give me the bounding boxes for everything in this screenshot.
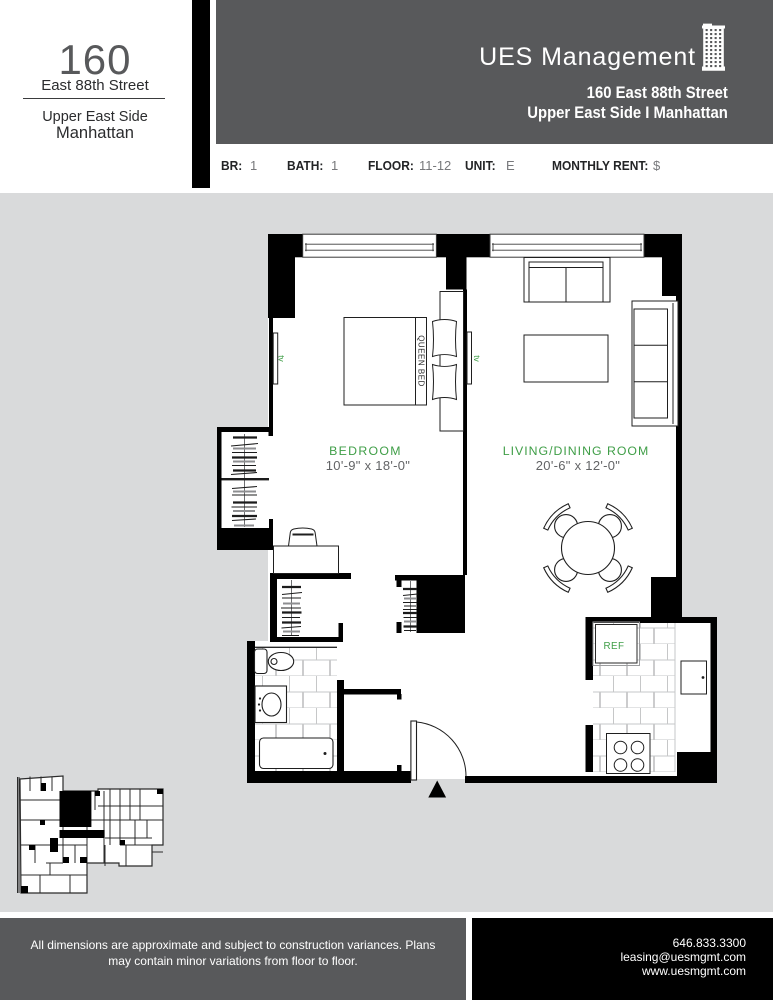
svg-text:20'-6" x 12'-0": 20'-6" x 12'-0": [536, 458, 621, 473]
svg-text:LIVING/DINING ROOM: LIVING/DINING ROOM: [503, 444, 649, 458]
svg-text:QUEEN BED: QUEEN BED: [417, 335, 426, 387]
svg-text:REF: REF: [603, 641, 624, 652]
svg-text:10'-9" x 18'-0": 10'-9" x 18'-0": [326, 458, 411, 473]
svg-text:BEDROOM: BEDROOM: [329, 444, 402, 458]
svg-text:tv: tv: [472, 355, 482, 362]
svg-text:tv: tv: [277, 355, 287, 362]
